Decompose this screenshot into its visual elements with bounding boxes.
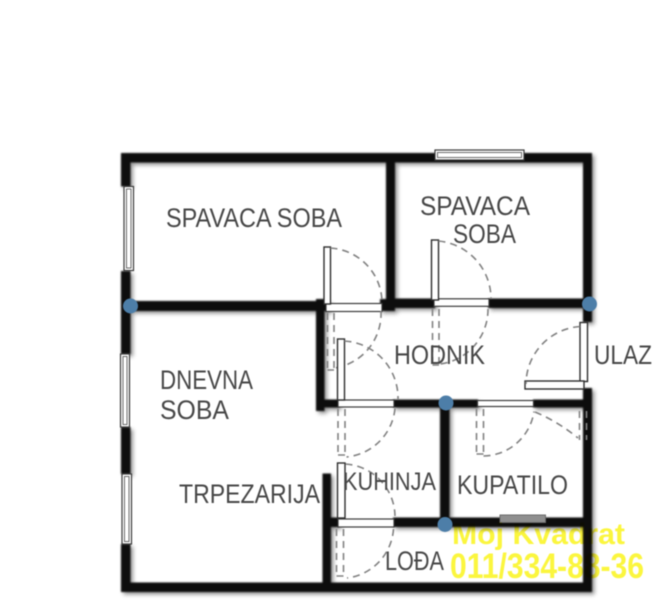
svg-text:SPAVACA SOBA: SPAVACA SOBA: [166, 203, 342, 233]
svg-text:HODNIK: HODNIK: [394, 340, 485, 370]
svg-text:SPAVACA: SPAVACA: [420, 191, 530, 221]
svg-text:DNEVNA: DNEVNA: [160, 365, 253, 395]
svg-text:KUHINJA: KUHINJA: [343, 468, 436, 496]
svg-text:011/334-88-36: 011/334-88-36: [450, 547, 644, 586]
svg-text:LOĐA: LOĐA: [385, 546, 444, 576]
svg-text:SOBA: SOBA: [160, 395, 229, 425]
svg-text:ULAZ: ULAZ: [594, 340, 652, 370]
svg-text:KUPATILO: KUPATILO: [457, 470, 568, 500]
svg-text:SOBA: SOBA: [453, 219, 516, 249]
svg-text:TRPEZARIJA: TRPEZARIJA: [179, 479, 320, 509]
